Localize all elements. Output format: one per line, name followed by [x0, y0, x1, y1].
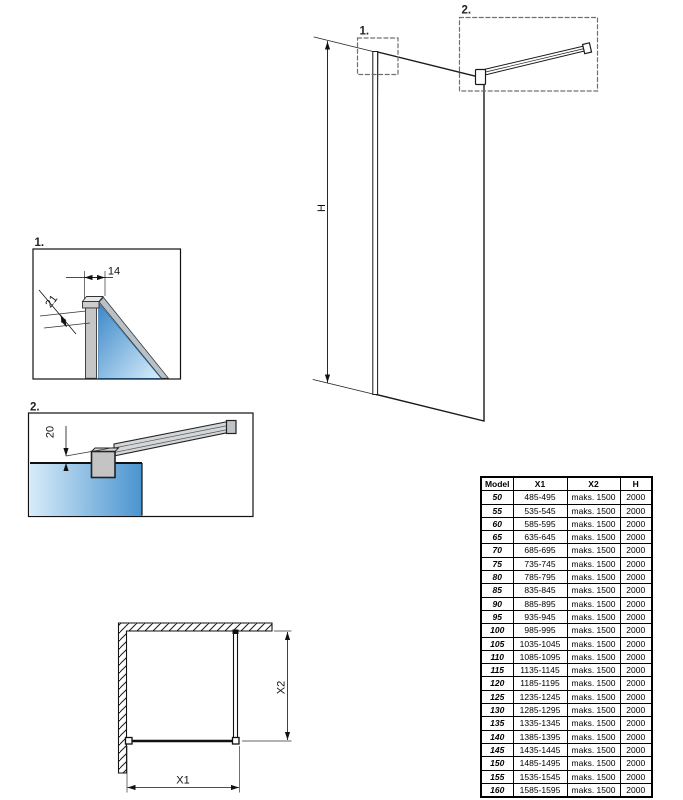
value-cell: 735-745	[513, 557, 567, 570]
x2-dimension-label: X2	[276, 681, 288, 694]
value-cell: maks. 1500	[567, 783, 620, 797]
value-cell: 2000	[620, 544, 652, 557]
callout-label-2: 2.	[462, 5, 472, 17]
support-bar-wall-anchor	[583, 43, 592, 54]
table-row: 1101085-1095maks. 15002000	[481, 650, 652, 663]
value-cell: maks. 1500	[567, 704, 620, 717]
dim14-label: 14	[108, 266, 120, 278]
value-cell: 1135-1145	[513, 664, 567, 677]
detail-1-profile-cap	[83, 302, 100, 309]
value-cell: 2000	[620, 717, 652, 730]
table-row: 50485-495maks. 15002000	[481, 491, 652, 504]
detail-2-glass	[30, 463, 142, 516]
value-cell: 1435-1445	[513, 743, 567, 756]
value-cell: 2000	[620, 704, 652, 717]
glass-panel-outline	[376, 52, 485, 421]
size-table-body: 50485-495maks. 1500200055535-545maks. 15…	[481, 491, 652, 797]
model-cell: 150	[481, 757, 513, 770]
value-cell: 2000	[620, 531, 652, 544]
value-cell: 885-895	[513, 597, 567, 610]
h-extension-bottom	[313, 380, 377, 396]
header-model: Model	[481, 477, 513, 491]
size-table-header-row: Model X1 X2 H	[481, 477, 652, 491]
h-extension-top	[314, 37, 375, 52]
header-x2: X2	[567, 477, 620, 491]
value-cell: 935-945	[513, 610, 567, 623]
wall-profile	[373, 52, 378, 395]
value-cell: maks. 1500	[567, 677, 620, 690]
value-cell: 2000	[620, 557, 652, 570]
value-cell: maks. 1500	[567, 664, 620, 677]
table-row: 65635-645maks. 15002000	[481, 531, 652, 544]
value-cell: maks. 1500	[567, 624, 620, 637]
value-cell: 1285-1295	[513, 704, 567, 717]
table-row: 100985-995maks. 15002000	[481, 624, 652, 637]
value-cell: 2000	[620, 690, 652, 703]
table-row: 1251235-1245maks. 15002000	[481, 690, 652, 703]
model-cell: 115	[481, 664, 513, 677]
table-row: 1301285-1295maks. 15002000	[481, 704, 652, 717]
value-cell: 1335-1345	[513, 717, 567, 730]
model-cell: 75	[481, 557, 513, 570]
detail-1-view: 1. 14 21	[33, 237, 181, 379]
value-cell: 2000	[620, 624, 652, 637]
value-cell: maks. 1500	[567, 757, 620, 770]
detail-1-profile-cap-top	[83, 297, 104, 302]
table-row: 1401385-1395maks. 15002000	[481, 730, 652, 743]
model-cell: 105	[481, 637, 513, 650]
detail-2-bar-end-cap	[227, 421, 237, 434]
callout-label-1: 1.	[360, 26, 370, 38]
value-cell: maks. 1500	[567, 690, 620, 703]
table-row: 90885-895maks. 15002000	[481, 597, 652, 610]
header-h: H	[620, 477, 652, 491]
value-cell: 1085-1095	[513, 650, 567, 663]
plan-glass-bar-joint	[233, 738, 240, 745]
value-cell: 535-545	[513, 504, 567, 517]
table-row: 55535-545maks. 15002000	[481, 504, 652, 517]
model-cell: 80	[481, 571, 513, 584]
value-cell: 2000	[620, 517, 652, 530]
size-table-head: Model X1 X2 H	[481, 477, 652, 491]
table-row: 1151135-1145maks. 15002000	[481, 664, 652, 677]
model-cell: 145	[481, 743, 513, 756]
value-cell: 2000	[620, 757, 652, 770]
table-row: 85835-845maks. 15002000	[481, 584, 652, 597]
header-x1: X1	[513, 477, 567, 491]
value-cell: maks. 1500	[567, 517, 620, 530]
value-cell: 985-995	[513, 624, 567, 637]
model-cell: 120	[481, 677, 513, 690]
model-cell: 110	[481, 650, 513, 663]
value-cell: maks. 1500	[567, 717, 620, 730]
model-cell: 135	[481, 717, 513, 730]
value-cell: maks. 1500	[567, 597, 620, 610]
model-cell: 130	[481, 704, 513, 717]
plan-glass-wall-profile	[126, 738, 133, 745]
model-cell: 155	[481, 770, 513, 783]
technical-drawing-page: H 1. 2. 1.	[0, 0, 683, 800]
value-cell: 2000	[620, 770, 652, 783]
model-cell: 60	[481, 517, 513, 530]
model-cell: 90	[481, 597, 513, 610]
table-row: 1201185-1195maks. 15002000	[481, 677, 652, 690]
table-row: 70685-695maks. 15002000	[481, 544, 652, 557]
plan-bar-wall-anchor	[233, 630, 239, 635]
dim20-label: 20	[45, 426, 57, 438]
detail-2-label: 2.	[30, 402, 40, 414]
value-cell: 2000	[620, 664, 652, 677]
model-cell: 95	[481, 610, 513, 623]
value-cell: maks. 1500	[567, 650, 620, 663]
table-row: 1051035-1045maks. 15002000	[481, 637, 652, 650]
support-bar-inner-line	[484, 48, 585, 72]
value-cell: 1035-1045	[513, 637, 567, 650]
value-cell: maks. 1500	[567, 491, 620, 504]
x1-dimension-label: X1	[176, 775, 189, 787]
value-cell: 635-645	[513, 531, 567, 544]
value-cell: 2000	[620, 783, 652, 797]
model-cell: 70	[481, 544, 513, 557]
value-cell: 785-795	[513, 571, 567, 584]
value-cell: 685-695	[513, 544, 567, 557]
table-row: 75735-745maks. 15002000	[481, 557, 652, 570]
value-cell: 2000	[620, 571, 652, 584]
value-cell: maks. 1500	[567, 571, 620, 584]
table-row: 60585-595maks. 15002000	[481, 517, 652, 530]
value-cell: 1385-1395	[513, 730, 567, 743]
table-row: 1601585-1595maks. 15002000	[481, 783, 652, 797]
value-cell: 585-595	[513, 517, 567, 530]
value-cell: maks. 1500	[567, 544, 620, 557]
value-cell: maks. 1500	[567, 531, 620, 544]
table-row: 1451435-1445maks. 15002000	[481, 743, 652, 756]
detail-2-clamp	[92, 452, 116, 478]
value-cell: maks. 1500	[567, 770, 620, 783]
support-bar-glass-bracket	[476, 70, 486, 85]
value-cell: 2000	[620, 743, 652, 756]
value-cell: 835-845	[513, 584, 567, 597]
table-row: 80785-795maks. 15002000	[481, 571, 652, 584]
table-row: 1501485-1495maks. 15002000	[481, 757, 652, 770]
value-cell: 2000	[620, 597, 652, 610]
value-cell: 2000	[620, 677, 652, 690]
table-row: 95935-945maks. 15002000	[481, 610, 652, 623]
value-cell: 1585-1595	[513, 783, 567, 797]
value-cell: maks. 1500	[567, 504, 620, 517]
table-row: 1351335-1345maks. 15002000	[481, 717, 652, 730]
detail-1-label: 1.	[35, 237, 45, 249]
value-cell: 1535-1545	[513, 770, 567, 783]
model-cell: 140	[481, 730, 513, 743]
model-cell: 125	[481, 690, 513, 703]
value-cell: 2000	[620, 637, 652, 650]
model-cell: 55	[481, 504, 513, 517]
model-cell: 50	[481, 491, 513, 504]
model-cell: 65	[481, 531, 513, 544]
value-cell: 485-495	[513, 491, 567, 504]
value-cell: maks. 1500	[567, 610, 620, 623]
model-cell: 160	[481, 783, 513, 797]
value-cell: maks. 1500	[567, 637, 620, 650]
value-cell: 2000	[620, 584, 652, 597]
table-row: 1551535-1545maks. 15002000	[481, 770, 652, 783]
value-cell: 1235-1245	[513, 690, 567, 703]
value-cell: 1185-1195	[513, 677, 567, 690]
value-cell: maks. 1500	[567, 557, 620, 570]
value-cell: 2000	[620, 491, 652, 504]
plan-walls	[119, 623, 273, 773]
plan-view: X2 X1	[119, 623, 292, 793]
value-cell: 1485-1495	[513, 757, 567, 770]
value-cell: 2000	[620, 504, 652, 517]
value-cell: 2000	[620, 650, 652, 663]
value-cell: maks. 1500	[567, 584, 620, 597]
value-cell: maks. 1500	[567, 730, 620, 743]
value-cell: maks. 1500	[567, 743, 620, 756]
model-cell: 85	[481, 584, 513, 597]
detail-2-view: 2. 20	[29, 402, 254, 517]
value-cell: 2000	[620, 610, 652, 623]
value-cell: 2000	[620, 730, 652, 743]
size-table: Model X1 X2 H 50485-495maks. 15002000555…	[480, 476, 653, 798]
main-view: H 1. 2.	[313, 5, 598, 422]
detail-1-profile-body	[86, 308, 97, 378]
h-dimension-label: H	[316, 204, 328, 212]
model-cell: 100	[481, 624, 513, 637]
